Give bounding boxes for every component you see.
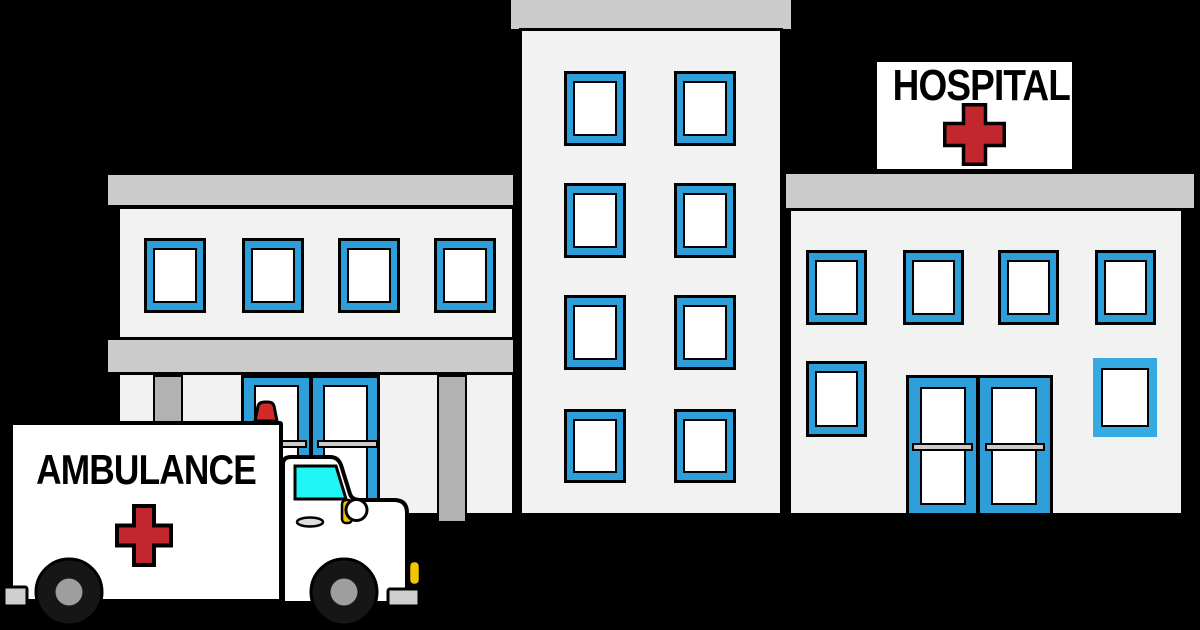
window-pane bbox=[683, 305, 727, 360]
ambulance-parts bbox=[0, 0, 1200, 630]
pillar bbox=[437, 375, 467, 523]
window bbox=[998, 250, 1059, 325]
headlight-cover-icon bbox=[346, 500, 367, 521]
entrance-door-right bbox=[977, 375, 1053, 516]
entrance-door-left bbox=[906, 375, 979, 516]
ambulance-body: AMBULANCE bbox=[9, 421, 283, 603]
front-marker-light-icon bbox=[409, 561, 420, 585]
window-pane bbox=[912, 260, 955, 315]
door-push-bar bbox=[246, 440, 307, 448]
window bbox=[806, 361, 867, 437]
window-pane bbox=[683, 419, 727, 473]
entrance-door-left bbox=[241, 375, 312, 516]
window-pane bbox=[815, 260, 858, 315]
window-pane bbox=[347, 248, 391, 303]
door-glass bbox=[254, 385, 299, 505]
ambulance-cab bbox=[283, 457, 407, 603]
front-bumper bbox=[388, 589, 419, 606]
window-pane bbox=[573, 193, 617, 248]
red-cross-icon bbox=[943, 103, 1006, 166]
window bbox=[564, 409, 626, 483]
front-wheel bbox=[311, 559, 377, 625]
window-pane bbox=[573, 419, 617, 473]
window-pane bbox=[683, 81, 727, 136]
door-handle-icon bbox=[297, 518, 323, 527]
door-glass bbox=[991, 387, 1037, 505]
door-glass bbox=[920, 387, 966, 505]
window-pane bbox=[683, 193, 727, 248]
window-pane bbox=[1104, 260, 1147, 315]
door-push-bar bbox=[985, 443, 1045, 451]
window bbox=[674, 183, 736, 258]
left-wing-building bbox=[0, 0, 1200, 630]
pillar bbox=[153, 375, 183, 523]
left-wing-roof-ledge bbox=[105, 172, 516, 208]
hospital-illustration: HOSPITAL AMBULANCE bbox=[0, 0, 1200, 630]
window bbox=[564, 295, 626, 370]
window-pane bbox=[153, 248, 197, 303]
window bbox=[434, 238, 496, 313]
window bbox=[242, 238, 304, 313]
tower-facade bbox=[519, 28, 783, 516]
headlight-icon bbox=[342, 500, 352, 523]
hospital-sign-label: HOSPITAL bbox=[893, 64, 1057, 108]
window bbox=[564, 183, 626, 258]
window-pane bbox=[573, 81, 617, 136]
entrance-door-right bbox=[310, 375, 380, 516]
right-wing-building: HOSPITAL bbox=[0, 0, 1200, 630]
window-pane bbox=[573, 305, 617, 360]
window-light-blue bbox=[1093, 358, 1157, 437]
window bbox=[674, 409, 736, 483]
window-pane bbox=[1101, 368, 1149, 427]
window-pane bbox=[251, 248, 295, 303]
window bbox=[674, 295, 736, 370]
door-push-bar bbox=[912, 443, 973, 451]
left-wing-middle-ledge bbox=[105, 337, 516, 375]
red-cross-icon bbox=[115, 504, 173, 567]
windshield bbox=[295, 466, 346, 499]
window bbox=[564, 71, 626, 146]
rear-bumper bbox=[4, 587, 27, 606]
ambulance: AMBULANCE bbox=[0, 0, 1200, 630]
door-glass bbox=[323, 385, 368, 505]
window-pane bbox=[815, 371, 858, 427]
center-tower-building bbox=[0, 0, 1200, 630]
door-push-bar bbox=[317, 440, 378, 448]
window bbox=[338, 238, 400, 313]
right-wing-facade bbox=[788, 208, 1184, 516]
window-pane bbox=[1007, 260, 1050, 315]
window bbox=[806, 250, 867, 325]
window bbox=[144, 238, 206, 313]
window bbox=[674, 71, 736, 146]
ambulance-label: AMBULANCE bbox=[34, 449, 257, 491]
right-wing-roof-ledge bbox=[783, 171, 1197, 211]
window bbox=[903, 250, 964, 325]
rear-wheel bbox=[36, 559, 102, 625]
hospital-sign: HOSPITAL bbox=[874, 59, 1075, 172]
window bbox=[1095, 250, 1156, 325]
window-pane bbox=[443, 248, 487, 303]
siren-light-icon bbox=[255, 402, 277, 421]
tower-roof-cap bbox=[508, 0, 794, 32]
left-wing-facade bbox=[117, 206, 515, 516]
